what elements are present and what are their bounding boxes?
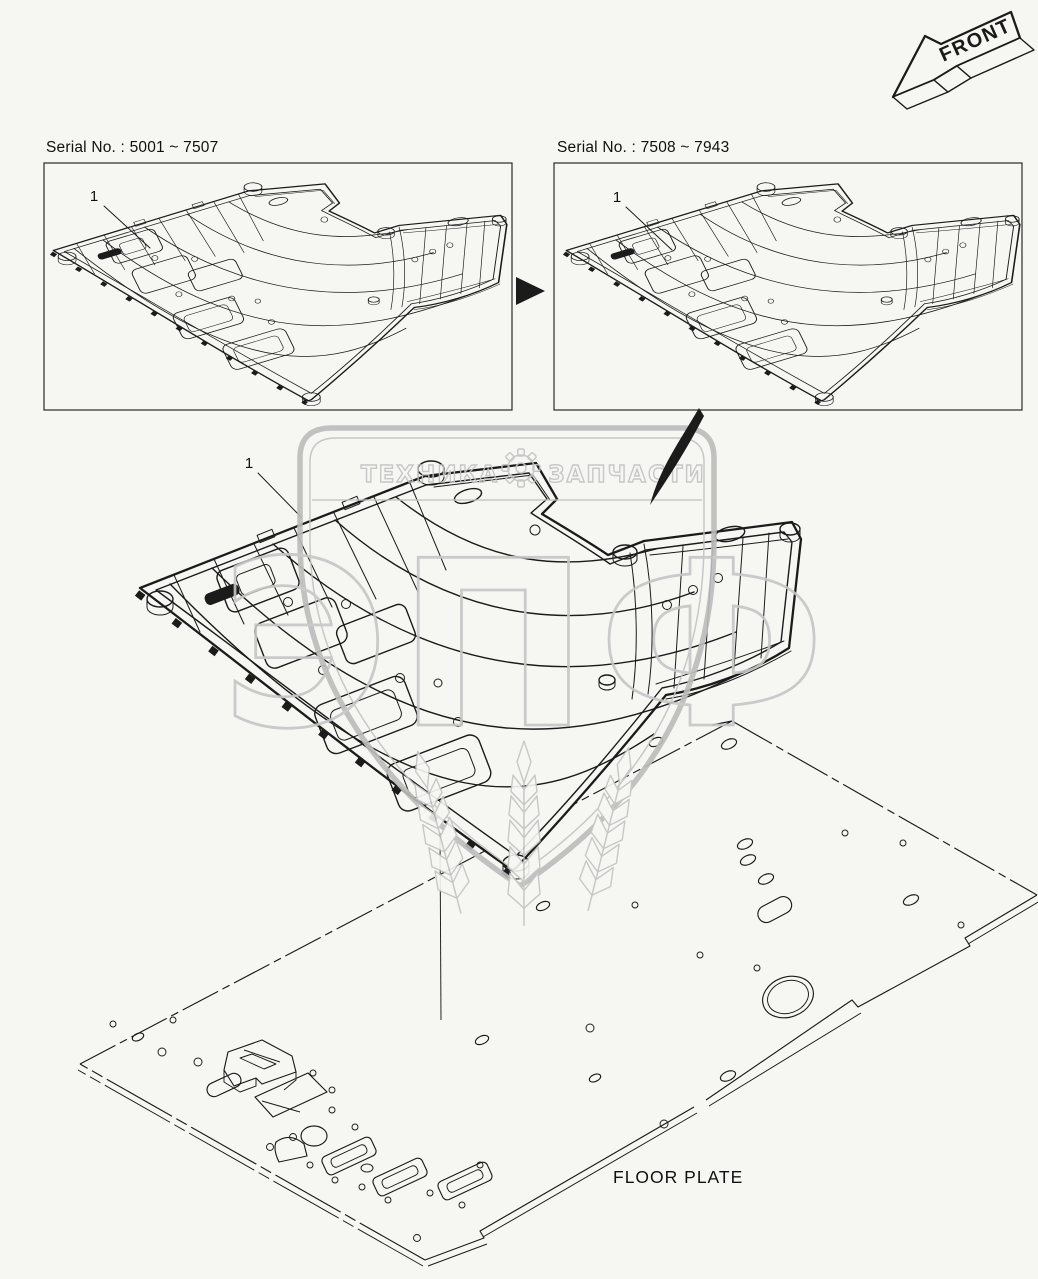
- serial-panel-1: Serial No. : 5001 ~ 7507 1: [44, 139, 512, 410]
- parts-diagram-page: FLOOR PLATE 1 Serial No. : 5001 ~ 7507 1…: [0, 0, 1038, 1279]
- front-arrow-icon: FRONT: [893, 12, 1034, 109]
- floor-mat-drawing-variant-1: [51, 183, 507, 406]
- next-variant-arrow-icon: [516, 277, 545, 305]
- floor-plate-bracket-cluster: [205, 1040, 494, 1242]
- main-callout-leader: [258, 473, 302, 518]
- watermark-word-right: ЗАПЧАСТИ: [548, 462, 706, 488]
- serial-label-2: Serial No. : 7508 ~ 7943: [557, 139, 729, 156]
- floor-mat-drawing-variant-2: [564, 183, 1020, 406]
- curved-flow-arrow-icon: [650, 408, 704, 505]
- watermark-word-left: ТЕХНИКА: [361, 462, 499, 488]
- serial-panel-2: Serial No. : 7508 ~ 7943 1: [554, 139, 1022, 410]
- panel-1-callout: 1: [90, 188, 98, 205]
- diagram-canvas: FLOOR PLATE 1 Serial No. : 5001 ~ 7507 1…: [0, 0, 1038, 1279]
- floor-plate-label: FLOOR PLATE: [613, 1167, 743, 1187]
- main-callout: 1: [245, 455, 253, 472]
- panel-2-callout: 1: [613, 189, 621, 206]
- watermark-monogram: ЭПФ: [220, 513, 833, 780]
- serial-label-1: Serial No. : 5001 ~ 7507: [46, 139, 218, 156]
